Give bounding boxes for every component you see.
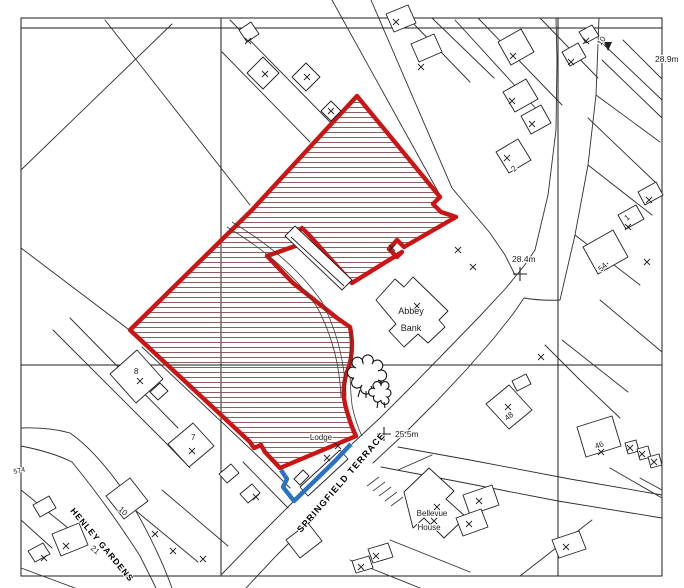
survey-cross [152, 531, 158, 537]
survey-cross [644, 259, 650, 265]
plot-574: 574 [13, 467, 26, 476]
label-abbey-bank-2: Bank [401, 323, 422, 333]
survey-cross [455, 247, 461, 253]
survey-cross [538, 354, 544, 360]
plot-7: 7 [191, 433, 196, 442]
label-lodge: Lodge [310, 433, 333, 442]
survey-cross [470, 264, 476, 270]
house-7 [168, 423, 214, 467]
survey-cross [200, 556, 206, 562]
bellevue-drive-steps [367, 477, 403, 506]
label-bellevue-1: Bellevue [417, 509, 448, 518]
site-hatched-area [130, 96, 456, 468]
level-cross-28-4 [513, 267, 527, 281]
house-48 [486, 385, 532, 429]
site-plan-map: 28.9m 28.4m 25.5m Abbey Bank Lodge Belle… [0, 0, 684, 588]
house-46 [577, 416, 621, 457]
label-abbey-bank-1: Abbey [398, 306, 424, 316]
survey-cross [324, 455, 330, 461]
buildings [28, 5, 663, 573]
spot-level-25-5: 25.5m [395, 429, 419, 439]
survey-cross [170, 548, 176, 554]
tree-symbols [347, 355, 391, 408]
spot-level-28-4: 28.4m [512, 254, 536, 264]
site-boundary-red [130, 96, 456, 468]
label-bellevue-2: House [417, 523, 441, 532]
site-plan-page: 28.9m 28.4m 25.5m Abbey Bank Lodge Belle… [0, 0, 684, 588]
survey-cross [418, 64, 424, 70]
plot-8: 8 [134, 367, 139, 376]
spot-level-28-9: 28.9m [655, 54, 679, 64]
